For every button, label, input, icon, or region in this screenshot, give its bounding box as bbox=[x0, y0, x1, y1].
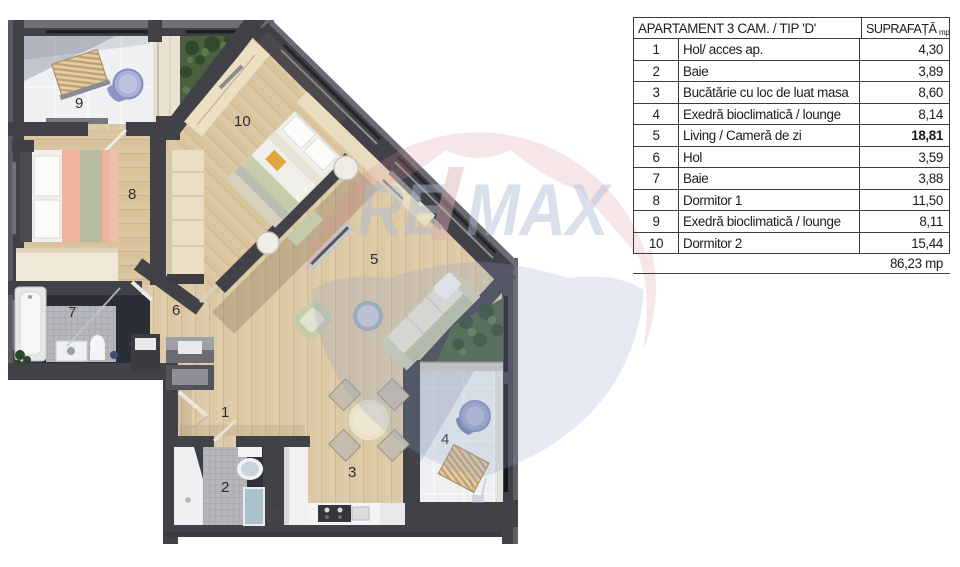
svg-text:3: 3 bbox=[348, 464, 356, 481]
svg-text:MAX: MAX bbox=[466, 169, 613, 251]
svg-text:2: 2 bbox=[221, 479, 229, 496]
svg-text:8: 8 bbox=[128, 186, 136, 203]
svg-text:9: 9 bbox=[75, 95, 83, 112]
svg-text:5: 5 bbox=[370, 251, 378, 268]
svg-text:6: 6 bbox=[172, 302, 180, 319]
svg-text:7: 7 bbox=[68, 304, 76, 321]
svg-text:10: 10 bbox=[234, 113, 251, 130]
svg-text:1: 1 bbox=[221, 404, 229, 421]
